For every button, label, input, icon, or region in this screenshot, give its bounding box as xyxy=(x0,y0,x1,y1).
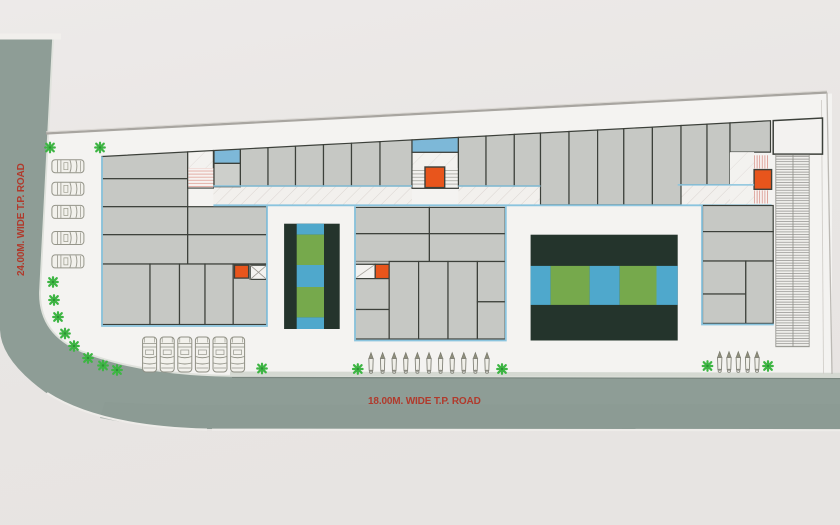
svg-text:24.00M. WIDE T.P. ROAD: 24.00M. WIDE T.P. ROAD xyxy=(16,163,27,276)
svg-text:18.00M. WIDE T.P. ROAD: 18.00M. WIDE T.P. ROAD xyxy=(368,396,481,407)
